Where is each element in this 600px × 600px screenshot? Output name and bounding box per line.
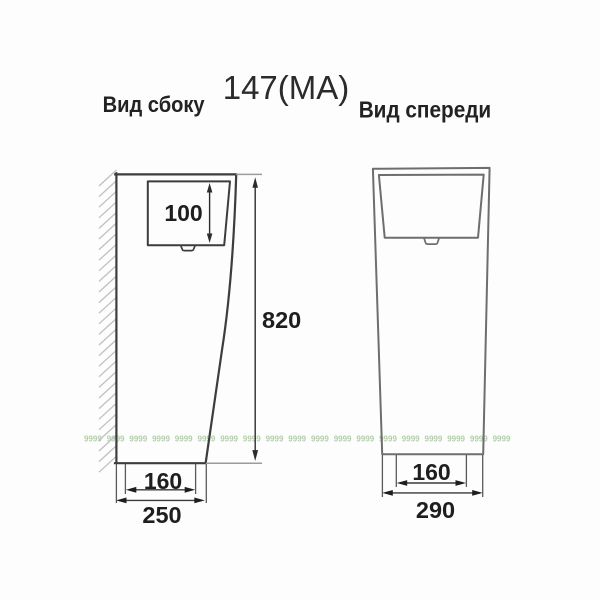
svg-text:250: 250 — [142, 502, 181, 528]
svg-text:9999: 9999 — [220, 435, 238, 444]
svg-text:9999: 9999 — [311, 435, 329, 444]
svg-text:9999: 9999 — [129, 435, 147, 444]
svg-text:9999: 9999 — [243, 435, 261, 444]
svg-text:820: 820 — [262, 307, 301, 333]
svg-text:9999: 9999 — [152, 435, 170, 444]
svg-text:9999: 9999 — [266, 435, 284, 444]
svg-text:9999: 9999 — [356, 435, 374, 444]
svg-text:290: 290 — [416, 497, 455, 523]
svg-text:160: 160 — [144, 468, 182, 494]
svg-text:9999: 9999 — [198, 435, 216, 444]
svg-text:9999: 9999 — [402, 435, 420, 444]
svg-text:Вид сбоку: Вид сбоку — [103, 92, 205, 117]
svg-text:9999: 9999 — [470, 435, 488, 444]
svg-text:100: 100 — [164, 200, 202, 226]
svg-text:9999: 9999 — [493, 435, 511, 444]
svg-text:9999: 9999 — [175, 435, 193, 444]
svg-text:9999: 9999 — [334, 435, 352, 444]
svg-text:9999: 9999 — [288, 435, 306, 444]
svg-text:9999: 9999 — [425, 435, 443, 444]
svg-text:160: 160 — [412, 459, 450, 485]
svg-text:9999: 9999 — [447, 435, 465, 444]
svg-text:147(МА): 147(МА) — [223, 69, 350, 106]
svg-text:Вид спереди: Вид спереди — [359, 97, 492, 123]
